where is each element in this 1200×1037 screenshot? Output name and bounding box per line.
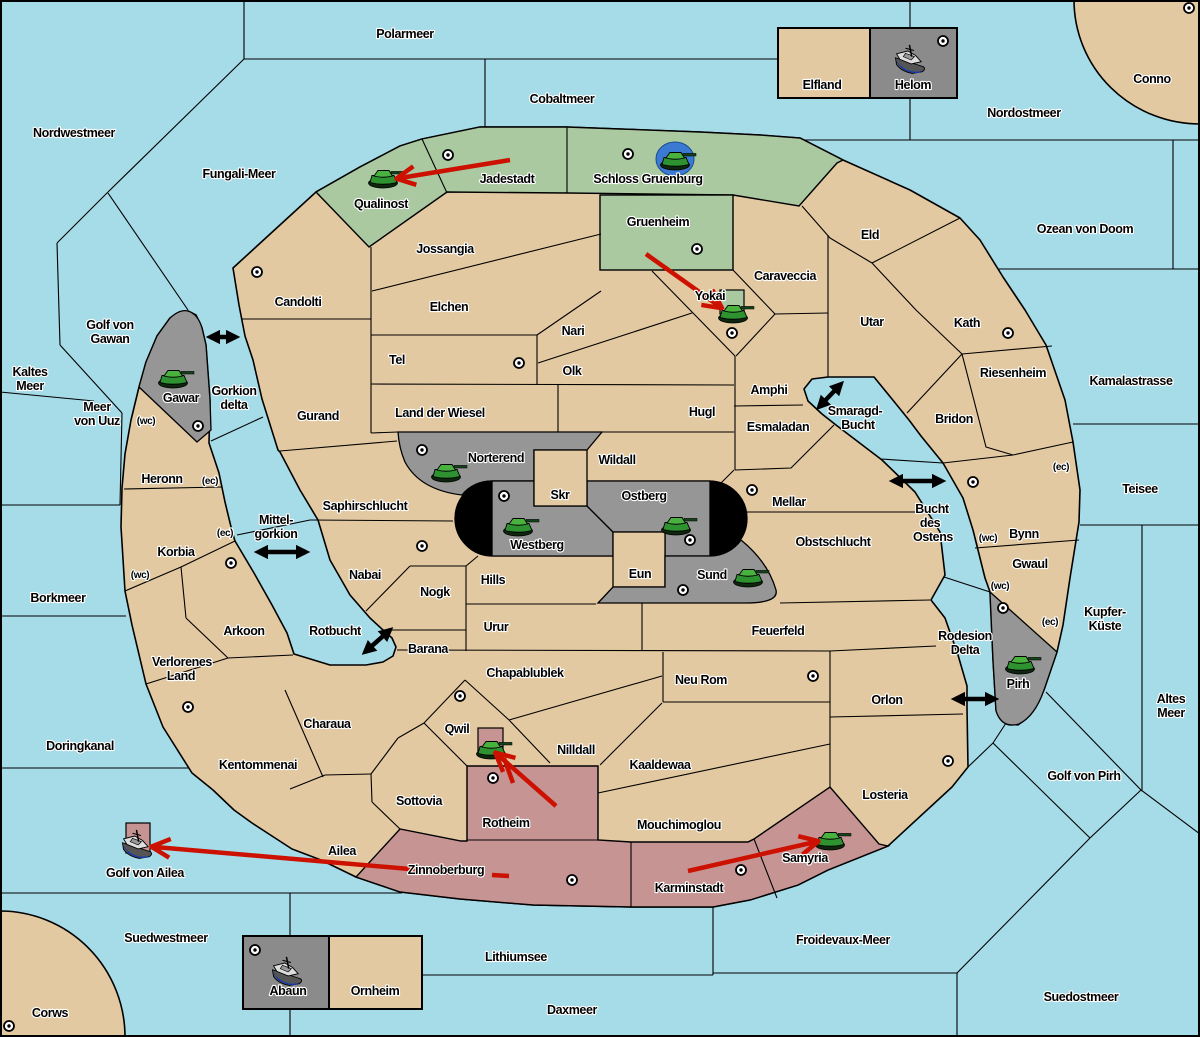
svg-text:(ec): (ec) (1053, 462, 1069, 473)
svg-text:(wc): (wc) (979, 533, 997, 544)
svg-text:Orlon: Orlon (871, 693, 902, 707)
svg-text:Golf von: Golf von (86, 318, 134, 332)
svg-text:(ec): (ec) (202, 476, 218, 487)
svg-text:Bucht: Bucht (915, 502, 950, 516)
svg-text:Gwaul: Gwaul (1012, 557, 1048, 571)
svg-text:Mellar: Mellar (772, 495, 806, 509)
svg-text:Amphi: Amphi (751, 383, 788, 397)
svg-text:Heronn: Heronn (141, 472, 182, 486)
svg-text:des: des (920, 516, 941, 530)
svg-text:Meer: Meer (83, 400, 111, 414)
svg-text:Sottovia: Sottovia (396, 794, 444, 808)
svg-text:Olk: Olk (563, 364, 582, 378)
svg-text:Rodesion: Rodesion (938, 629, 992, 643)
svg-text:Verlorenes: Verlorenes (152, 655, 212, 669)
svg-text:(ec): (ec) (1042, 617, 1058, 628)
svg-text:Land: Land (167, 669, 195, 683)
svg-text:Cobaltmeer: Cobaltmeer (530, 92, 595, 106)
svg-text:Bynn: Bynn (1009, 527, 1039, 541)
svg-text:Jadestadt: Jadestadt (480, 172, 536, 186)
svg-text:Candolti: Candolti (275, 295, 322, 309)
svg-text:Chapablublek: Chapablublek (486, 666, 564, 680)
svg-text:Smaragd-: Smaragd- (828, 404, 883, 418)
svg-text:Suedostmeer: Suedostmeer (1044, 990, 1119, 1004)
svg-text:Gurand: Gurand (297, 409, 339, 423)
svg-text:Nilldall: Nilldall (557, 743, 595, 757)
svg-text:Samyria: Samyria (782, 851, 829, 865)
svg-text:Feuerfeld: Feuerfeld (752, 624, 805, 638)
svg-text:Kupfer-: Kupfer- (1084, 605, 1126, 619)
svg-text:Land der Wiesel: Land der Wiesel (395, 406, 485, 420)
svg-text:von Uuz: von Uuz (74, 414, 120, 428)
svg-text:Helom: Helom (895, 78, 931, 92)
svg-text:Mittel-: Mittel- (259, 513, 293, 527)
svg-text:Elfland: Elfland (803, 78, 842, 92)
svg-text:Kath: Kath (954, 316, 980, 330)
svg-text:Nogk: Nogk (420, 585, 450, 599)
svg-text:(wc): (wc) (991, 581, 1009, 592)
svg-text:Polarmeer: Polarmeer (376, 27, 434, 41)
svg-text:Kaaldewaa: Kaaldewaa (629, 758, 691, 772)
svg-text:Sund: Sund (697, 568, 727, 582)
svg-text:Qwil: Qwil (445, 722, 470, 736)
svg-text:Mouchimoglou: Mouchimoglou (637, 818, 721, 832)
svg-text:Kamalastrasse: Kamalastrasse (1089, 374, 1173, 388)
svg-text:Neu Rom: Neu Rom (675, 673, 727, 687)
svg-text:Obstschlucht: Obstschlucht (795, 535, 871, 549)
svg-text:(wc): (wc) (137, 416, 155, 427)
svg-text:Gorkion: Gorkion (211, 384, 256, 398)
svg-text:Zinnoberburg: Zinnoberburg (408, 863, 484, 877)
svg-text:Bridon: Bridon (935, 412, 973, 426)
svg-text:Froidevaux-Meer: Froidevaux-Meer (796, 933, 891, 947)
svg-text:Caraveccia: Caraveccia (754, 269, 817, 283)
svg-text:Qualinost: Qualinost (354, 197, 409, 211)
svg-text:Meer: Meer (16, 379, 44, 393)
svg-text:Eun: Eun (629, 567, 651, 581)
svg-text:Pirh: Pirh (1007, 677, 1030, 691)
svg-text:Ostberg: Ostberg (621, 489, 666, 503)
svg-text:Barana: Barana (408, 642, 449, 656)
svg-text:Rotheim: Rotheim (482, 816, 529, 830)
svg-text:Kaltes: Kaltes (12, 365, 48, 379)
svg-text:Riesenheim: Riesenheim (980, 366, 1046, 380)
svg-text:(wc): (wc) (131, 570, 149, 581)
svg-text:Küste: Küste (1089, 619, 1122, 633)
svg-text:Nari: Nari (562, 324, 585, 338)
svg-text:gorkion: gorkion (254, 527, 297, 541)
svg-text:Golf von Ailea: Golf von Ailea (106, 866, 185, 880)
svg-text:Delta: Delta (951, 643, 981, 657)
svg-text:Westberg: Westberg (510, 538, 564, 552)
svg-text:Nordwestmeer: Nordwestmeer (33, 126, 116, 140)
svg-text:Charaua: Charaua (303, 717, 352, 731)
svg-text:Korbia: Korbia (157, 545, 196, 559)
svg-text:Gruenheim: Gruenheim (627, 215, 690, 229)
svg-text:Elchen: Elchen (430, 300, 469, 314)
svg-text:Gawar: Gawar (163, 391, 200, 405)
svg-text:Borkmeer: Borkmeer (30, 591, 86, 605)
svg-text:Abaun: Abaun (270, 984, 307, 998)
svg-text:Nabai: Nabai (349, 568, 381, 582)
svg-text:Suedwestmeer: Suedwestmeer (124, 931, 208, 945)
svg-text:Karminstadt: Karminstadt (655, 881, 725, 895)
svg-text:Golf von Pirh: Golf von Pirh (1047, 769, 1120, 783)
svg-text:Kentommenai: Kentommenai (219, 758, 297, 772)
svg-text:Jossangia: Jossangia (416, 242, 475, 256)
svg-text:Schloss Gruenburg: Schloss Gruenburg (593, 172, 702, 186)
svg-text:Fungali-Meer: Fungali-Meer (203, 167, 277, 181)
svg-text:Rotbucht: Rotbucht (309, 624, 362, 638)
svg-text:Altes: Altes (1157, 692, 1186, 706)
svg-text:Lithiumsee: Lithiumsee (485, 950, 547, 964)
svg-text:Yokai: Yokai (695, 289, 725, 303)
svg-text:Saphirschlucht: Saphirschlucht (323, 499, 409, 513)
svg-text:Daxmeer: Daxmeer (547, 1003, 598, 1017)
svg-text:Losteria: Losteria (862, 788, 909, 802)
svg-text:Hills: Hills (481, 573, 506, 587)
svg-text:Tel: Tel (389, 353, 405, 367)
svg-text:Skr: Skr (551, 488, 570, 502)
svg-text:Teisee: Teisee (1122, 482, 1158, 496)
svg-text:Meer: Meer (1157, 706, 1185, 720)
svg-text:delta: delta (220, 398, 249, 412)
svg-text:Corws: Corws (32, 1006, 69, 1020)
svg-text:Ornheim: Ornheim (351, 984, 400, 998)
svg-text:Hugl: Hugl (689, 405, 715, 419)
svg-text:(ec): (ec) (217, 528, 233, 539)
svg-text:Utar: Utar (860, 315, 884, 329)
svg-text:Urur: Urur (484, 620, 509, 634)
svg-text:Conno: Conno (1133, 72, 1171, 86)
svg-text:Wildall: Wildall (598, 453, 635, 467)
svg-text:Norterend: Norterend (468, 451, 524, 465)
svg-text:Bucht: Bucht (841, 418, 876, 432)
svg-text:Doringkanal: Doringkanal (46, 739, 114, 753)
svg-text:Eld: Eld (861, 228, 879, 242)
svg-text:Arkoon: Arkoon (223, 624, 264, 638)
svg-text:Ostens: Ostens (913, 530, 953, 544)
svg-text:Nordostmeer: Nordostmeer (987, 106, 1061, 120)
svg-text:Ailea: Ailea (328, 844, 357, 858)
svg-text:Esmaladan: Esmaladan (747, 420, 809, 434)
svg-text:Gawan: Gawan (91, 332, 130, 346)
svg-text:Ozean von Doom: Ozean von Doom (1037, 222, 1134, 236)
